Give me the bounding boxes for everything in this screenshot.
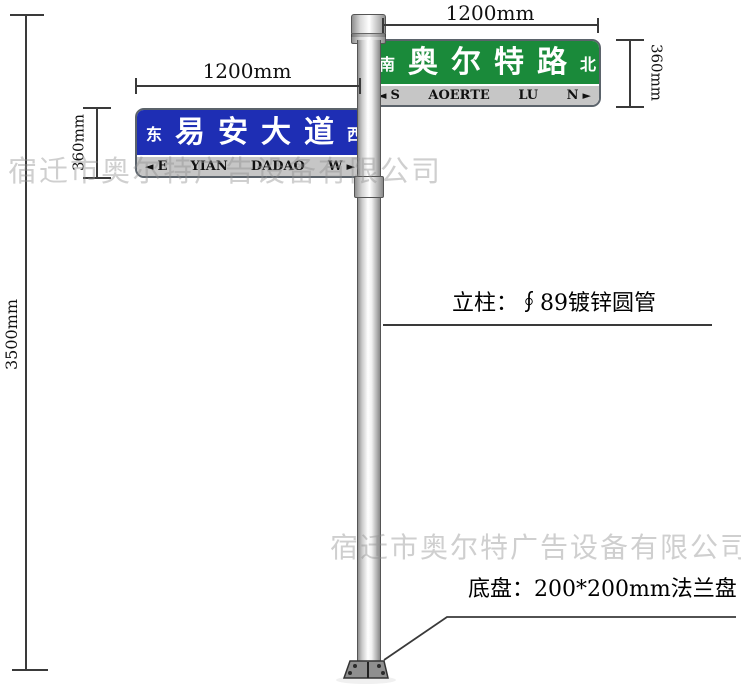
blue-strip-word2: DADAO [251, 160, 305, 173]
blue-strip-word1: YIAN [190, 160, 227, 173]
pole-coupling [354, 176, 384, 198]
green-direction-right: 北 [580, 51, 596, 75]
green-height-dimension-label: 360mm [649, 44, 664, 102]
green-pinyin-strip: ◄ S AOERTE LU N ► [370, 86, 599, 105]
blue-strip-right: W ► [328, 160, 355, 173]
green-height-dimension-line [616, 40, 644, 107]
blue-road-name: 易安大道 [162, 118, 347, 148]
left-arrow-icon: ◄ [145, 161, 153, 172]
blue-sign-face: 东 易安大道 西 [137, 110, 363, 155]
green-direction-left: 南 [379, 51, 395, 75]
pole-cap-groove [351, 33, 386, 37]
pole [357, 40, 381, 661]
base-spec-annotation: 底盘：200*200mm法兰盘 [468, 578, 737, 602]
blue-strip-right-letter: W [328, 160, 343, 173]
bolt-hole [377, 664, 381, 668]
blue-strip-left: ◄ E [145, 160, 167, 173]
right-arrow-icon: ► [583, 90, 591, 101]
green-strip-left: ◄ S [378, 89, 400, 102]
green-sign-face: 南 奥尔特路 北 [370, 41, 599, 84]
flange-base-plate [336, 661, 396, 684]
blue-direction-left: 东 [146, 121, 162, 145]
company-watermark: 宿迁市奥尔特广告设备有限公司 [330, 526, 741, 566]
pole-spec-annotation: 立柱：∮89镀锌圆管 [452, 292, 656, 316]
blue-height-dimension-label: 360mm [72, 114, 87, 172]
bolt-hole [381, 671, 385, 675]
blue-width-dimension-label: 1200mm [197, 61, 297, 81]
green-strip-word1: AOERTE [428, 89, 489, 102]
blue-pinyin-strip: ◄ E YIAN DADAO W ► [137, 157, 363, 176]
bolt-hole [353, 664, 357, 668]
signpost-diagram: 南 奥尔特路 北 ◄ S AOERTE LU N ► 东 易安大道 西 ◄ [0, 0, 741, 689]
right-arrow-icon: ► [347, 161, 355, 172]
base-spec-leader-line [384, 617, 736, 660]
blue-road-sign: 东 易安大道 西 ◄ E YIAN DADAO W ► [135, 108, 365, 178]
bolt-hole [348, 671, 352, 675]
green-strip-right-letter: N [567, 89, 579, 102]
green-strip-right: N ► [567, 89, 591, 102]
green-road-sign: 南 奥尔特路 北 ◄ S AOERTE LU N ► [368, 39, 601, 107]
green-strip-left-letter: S [390, 89, 399, 102]
total-height-dimension-label: 3500mm [4, 312, 20, 370]
blue-strip-left-letter: E [157, 160, 167, 173]
green-road-name: 奥尔特路 [395, 48, 580, 78]
green-strip-word2: LU [518, 89, 538, 102]
green-width-dimension-label: 1200mm [440, 3, 540, 23]
